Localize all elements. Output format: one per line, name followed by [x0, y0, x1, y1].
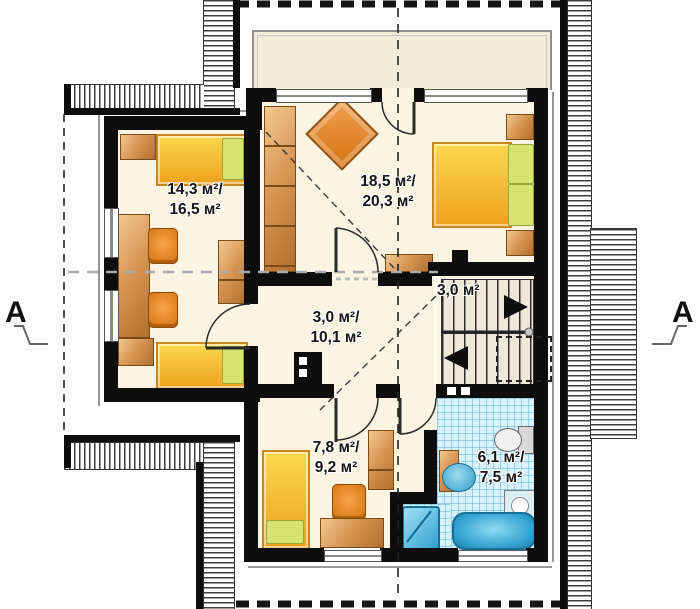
pillow [222, 346, 244, 384]
nightstand [506, 230, 534, 256]
area-line: 3,0 м² [437, 281, 497, 301]
eave-band-bottom-left-horizontal [64, 442, 204, 470]
area-label-master-bedroom: 18,5 м²/ 20,3 м² [348, 172, 428, 212]
wall-stair-top [428, 262, 536, 276]
wall [244, 388, 258, 562]
area-line: 6,1 м²/ [468, 448, 534, 468]
chimney-flue [299, 357, 307, 365]
double-bed [432, 142, 512, 228]
pillow [222, 138, 244, 180]
wall-south [376, 384, 400, 398]
area-line: 10,1 м² [296, 328, 376, 348]
area-line: 7,8 м²/ [296, 438, 376, 458]
desk-chair [148, 292, 178, 328]
eave-edge-bottom-left-h [64, 435, 240, 442]
wall-bottom [380, 548, 458, 562]
eave-band-bottom-left-vertical [203, 442, 235, 609]
desk-chair [148, 228, 178, 264]
exterior-offset-line-right [552, 92, 554, 562]
area-line: 14,3 м²/ [138, 180, 252, 200]
eave-edge-bottom-left-v [196, 462, 203, 609]
dresser [385, 254, 433, 272]
area-line: 16,5 м² [138, 200, 252, 220]
chimney-stub [452, 250, 468, 262]
wardrobe-master [264, 106, 296, 272]
eave-edge-top-left-v [233, 0, 240, 88]
wall-hall-top [378, 272, 432, 286]
pillow [508, 144, 534, 184]
wall [104, 388, 260, 402]
wall-bath-divider [424, 430, 437, 492]
desk-chair [332, 484, 366, 520]
floor-door-gap-child-bottom [334, 384, 376, 398]
wall [526, 88, 548, 102]
wall [414, 88, 424, 102]
eave-edge-right [560, 0, 567, 609]
area-line: 3,0 м²/ [296, 308, 376, 328]
shower-tray [402, 506, 440, 552]
window-left-top [104, 208, 119, 258]
stair-opening-dashed-outline [496, 336, 552, 382]
eave-edge-top-left-h [64, 108, 240, 115]
area-label-child-room-left: 14,3 м²/ 16,5 м² [138, 180, 252, 220]
chimney-flue [461, 387, 470, 395]
exterior-offset-line-left [98, 110, 100, 406]
area-label-bathroom: 6,1 м²/ 7,5 м² [468, 448, 534, 488]
wall-bottom [526, 548, 548, 562]
wall [104, 340, 118, 392]
area-label-hall: 3,0 м²/ 10,1 м² [296, 308, 376, 348]
wall [104, 116, 262, 130]
wall [104, 256, 118, 290]
window-balcony-left [276, 89, 372, 103]
balcony-floor [252, 30, 552, 90]
area-line: 18,5 м²/ [348, 172, 428, 192]
wall [244, 346, 258, 388]
wall-hall-top [258, 272, 332, 286]
section-marker-left: A [5, 298, 27, 328]
eave-band-right [567, 0, 592, 609]
nightstand [118, 338, 154, 366]
balcony-rail-inner-line [257, 35, 547, 90]
exterior-offset-line-bottom [248, 566, 552, 568]
desk-child-left [118, 214, 150, 338]
eave-band-right-wide [590, 228, 637, 439]
area-label-staircase: 3,0 м² [437, 281, 497, 301]
area-label-child-room-bottom: 7,8 м²/ 9,2 м² [296, 438, 376, 478]
wall-shower-nook [390, 492, 403, 550]
chimney-flue [299, 369, 307, 377]
wall-right-exterior [534, 102, 548, 562]
nightstand [120, 134, 156, 160]
floor-door-gap-bathroom [400, 384, 436, 398]
pillow [508, 184, 534, 226]
bathtub [452, 512, 536, 550]
wall-bottom [244, 548, 324, 562]
section-marker-right: A [672, 298, 694, 328]
window-balcony-right [424, 89, 528, 103]
area-line: 20,3 м² [348, 192, 428, 212]
area-line: 7,5 м² [468, 468, 534, 488]
wall [246, 88, 276, 102]
floor-balcony-door-gap [382, 88, 414, 102]
eave-band-top-left-vertical [203, 0, 235, 110]
window-bottom-bath [458, 550, 528, 562]
window-left-bottom [104, 290, 119, 342]
wall [244, 276, 258, 304]
nightstand [506, 114, 534, 140]
desk-child-bottom [320, 518, 384, 548]
eave-cap-bottom-left [64, 442, 71, 468]
window-bottom-child [324, 550, 382, 562]
chimney-flue [447, 387, 456, 395]
area-line: 9,2 м² [296, 458, 376, 478]
floor-plan: 14,3 м²/ 16,5 м² 18,5 м²/ 20,3 м² 3,0 м²… [0, 0, 700, 609]
wall [104, 116, 118, 208]
pillow [266, 520, 304, 544]
eave-cap-top-left [64, 84, 71, 115]
